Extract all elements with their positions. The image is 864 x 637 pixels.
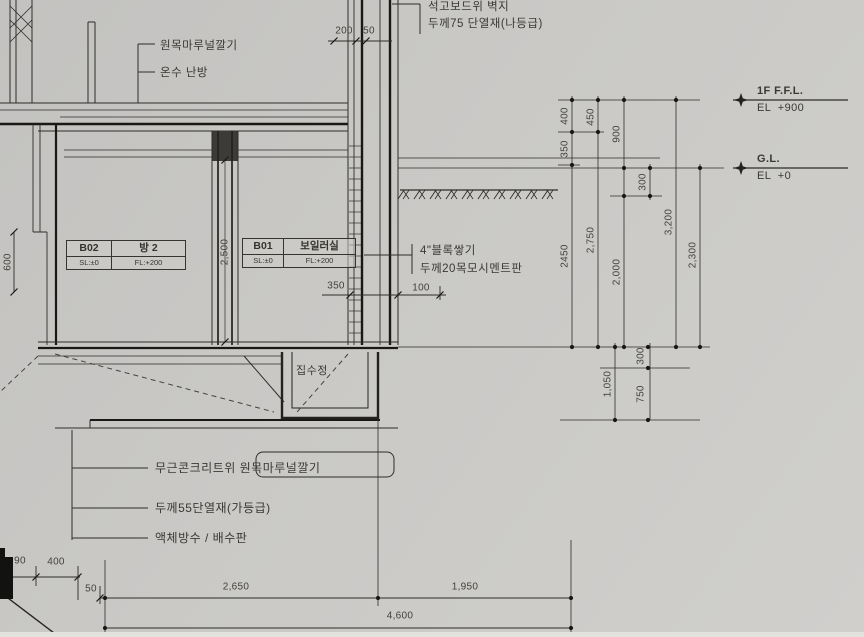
dim-label: 2,650 xyxy=(223,582,250,593)
hatch-stroke xyxy=(499,190,505,199)
dim-dot xyxy=(570,163,574,167)
room-sl: SL:±0 xyxy=(67,257,112,269)
dimension-chains xyxy=(0,38,710,633)
room-name: 방 2 xyxy=(112,241,185,256)
dim-dot xyxy=(569,596,573,600)
dim-label: 1,050 xyxy=(603,371,614,398)
dim-label: 400 xyxy=(560,107,571,125)
scan-edge xyxy=(0,632,864,637)
grade-lines xyxy=(398,158,724,199)
dim-label: 100 xyxy=(412,283,430,294)
upper-left-wall xyxy=(10,0,95,103)
dim-label: 2,750 xyxy=(586,227,597,254)
architectural-section-sheet: 석고보드위 벽지 두께75 단열재(나등급) 원목마루널깔기 온수 난방 4"블… xyxy=(0,0,864,637)
gl-level-symbol xyxy=(734,161,748,175)
dim-dot xyxy=(698,166,702,170)
note-gypsum-board: 석고보드위 벽지 xyxy=(428,0,509,14)
dim-label: 90 xyxy=(14,556,26,567)
room-fl: FL:+200 xyxy=(112,257,185,269)
dim-label: 50 xyxy=(363,26,375,37)
dim-label: 3,200 xyxy=(664,209,675,236)
dim-dot xyxy=(698,345,702,349)
dim-dot xyxy=(103,626,107,630)
hatch-stroke xyxy=(510,190,516,199)
dim-label: 200 xyxy=(335,26,353,37)
dim-dot xyxy=(674,345,678,349)
note-insulation-55: 두께55단열재(가등급) xyxy=(155,499,271,516)
dim-label: 900 xyxy=(612,125,623,143)
dim-dot xyxy=(570,130,574,134)
hatch-stroke xyxy=(478,190,484,199)
dim-label: 350 xyxy=(327,281,345,292)
dim-dot xyxy=(103,596,107,600)
dim-label: 2,300 xyxy=(688,242,699,269)
note-cement-board: 두께20목모시멘트판 xyxy=(420,260,522,276)
room-tag-b01: B01 보일러실 SL:±0 FL:+200 xyxy=(242,238,356,268)
gl-elevation: EL +0 xyxy=(757,170,791,182)
right-exterior-wall xyxy=(348,0,398,345)
hatch-stroke xyxy=(531,190,537,199)
dim-dot xyxy=(674,98,678,102)
ffl-label: 1F F.F.L. xyxy=(757,85,803,97)
dim-dot xyxy=(570,345,574,349)
ffl-level-symbol xyxy=(734,93,748,107)
dim-dot xyxy=(596,98,600,102)
dim-dot xyxy=(570,98,574,102)
basement-floor-and-mat xyxy=(38,342,398,428)
dim-dot xyxy=(622,98,626,102)
dim-label: 300 xyxy=(638,173,649,191)
note-plain-concrete: 무근콘크리트위 원목마루널깔기 xyxy=(155,459,320,476)
note-block-wall: 4"블록쌓기 xyxy=(420,242,476,258)
room-sl: SL:±0 xyxy=(243,255,284,267)
dim-label: 2450 xyxy=(560,244,571,267)
note-sump-pit: 집수정 xyxy=(296,362,328,378)
hatch-stroke xyxy=(435,190,441,199)
dim-dot xyxy=(648,166,652,170)
hatch-stroke xyxy=(446,190,452,199)
dim-label: 2,500 xyxy=(220,239,231,266)
dim-dot xyxy=(376,596,380,600)
dim-dot xyxy=(646,366,650,370)
hatch-stroke xyxy=(398,190,404,199)
dimension-ticks xyxy=(11,38,444,602)
note-insulation-75: 두께75 단열재(나등급) xyxy=(428,15,543,31)
room-ceiling-lines xyxy=(64,150,348,157)
gl-label: G.L. xyxy=(757,153,780,165)
room-code: B01 xyxy=(243,239,284,254)
earth-hatch xyxy=(398,190,553,199)
dim-dot xyxy=(613,418,617,422)
room-code: B02 xyxy=(67,241,112,256)
hatch-stroke xyxy=(403,190,409,199)
dim-label: 350 xyxy=(560,140,571,158)
dim-dot xyxy=(622,345,626,349)
dim-dot xyxy=(646,345,650,349)
first-floor-slab xyxy=(0,103,348,131)
hatch-stroke xyxy=(451,190,457,199)
ffl-elevation: EL +900 xyxy=(757,102,804,114)
hatch-stroke xyxy=(430,190,436,199)
room-fl: FL:+200 xyxy=(284,255,355,267)
hatch-stroke xyxy=(515,190,521,199)
dim-dot xyxy=(648,194,652,198)
dim-dot xyxy=(622,194,626,198)
room-name: 보일러실 xyxy=(284,239,355,254)
hatch-stroke xyxy=(547,190,553,199)
dim-dot xyxy=(596,345,600,349)
hatch-stroke xyxy=(467,190,473,199)
hatch-stroke xyxy=(462,190,468,199)
dim-label: 450 xyxy=(586,108,597,126)
hatch-stroke xyxy=(494,190,500,199)
dim-label: 750 xyxy=(636,385,647,403)
dim-dot xyxy=(613,345,617,349)
hatch-stroke xyxy=(419,190,425,199)
hatch-stroke xyxy=(414,190,420,199)
dim-dot xyxy=(596,130,600,134)
dim-label: 400 xyxy=(47,557,65,568)
linework xyxy=(0,0,864,637)
hatch-stroke xyxy=(483,190,489,199)
note-hot-water-heating: 온수 난방 xyxy=(160,64,208,80)
dim-dot xyxy=(569,626,573,630)
dim-label: 300 xyxy=(636,347,647,365)
dim-label: 4,600 xyxy=(387,611,414,622)
hatch-stroke xyxy=(526,190,532,199)
dim-label: 600 xyxy=(3,253,14,271)
note-waterproofing: 액체방수 / 배수판 xyxy=(155,529,247,546)
note-wood-flooring: 원목마루널깔기 xyxy=(160,37,238,53)
dim-label: 50 xyxy=(85,584,97,595)
dim-dot xyxy=(646,418,650,422)
dim-dot xyxy=(622,166,626,170)
hatch-stroke xyxy=(542,190,548,199)
room-tag-b02: B02 방 2 SL:±0 FL:+200 xyxy=(66,240,186,270)
dim-label: 1,950 xyxy=(452,582,479,593)
dim-label: 2,000 xyxy=(612,259,623,286)
